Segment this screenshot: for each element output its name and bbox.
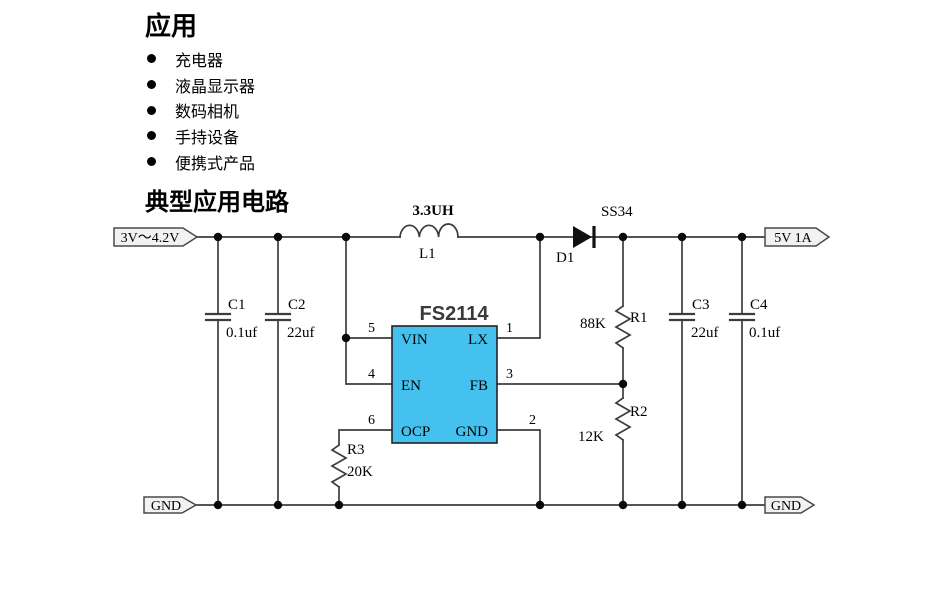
datasheet-page: { "page": { "applications_heading": "应用"…: [0, 0, 952, 602]
junction-dot: [342, 233, 350, 241]
diode-ref-label: D1: [556, 250, 574, 266]
junction-dot: [536, 233, 544, 241]
junction-dot: [335, 501, 343, 509]
c2-value-label: 22uf: [287, 325, 315, 341]
c3-ref-label: C3: [692, 297, 710, 313]
junction-dot: [274, 233, 282, 241]
resistor-r2-symbol: [616, 398, 630, 440]
c4-value-label: 0.1uf: [749, 325, 780, 341]
application-circuit-schematic: 3V～4.2V 5V 1A GND GND FS2114 VIN EN OCP …: [0, 0, 952, 602]
capacitor-c1-symbol: [206, 314, 230, 320]
c2-ref-label: C2: [288, 297, 306, 313]
c1-value-label: 0.1uf: [226, 325, 257, 341]
diode-part-label: SS34: [601, 204, 633, 220]
pin-number-2: 2: [529, 413, 536, 428]
capacitor-c2-symbol: [266, 314, 290, 320]
r2-ref-label: R2: [630, 404, 648, 420]
pin-label-vin: VIN: [401, 332, 428, 348]
junction-dot: [738, 233, 746, 241]
r1-ref-label: R1: [630, 310, 648, 326]
r2-value-label: 12K: [578, 429, 604, 445]
inductor-coil-symbol: [400, 224, 458, 237]
c1-ref-label: C1: [228, 297, 246, 313]
r1-value-label: 88K: [580, 316, 606, 332]
junction-dot: [678, 233, 686, 241]
resistor-r1-symbol: [616, 306, 630, 348]
inductor-ref-label: L1: [419, 246, 436, 262]
junction-dot: [738, 501, 746, 509]
diode-d1-symbol: [573, 226, 594, 248]
input-net-label: 3V～4.2V: [121, 231, 180, 246]
junction-dot: [274, 501, 282, 509]
junction-dot: [678, 501, 686, 509]
junction-dot: [619, 501, 627, 509]
ic-name-label: FS2114: [420, 303, 490, 325]
junction-dot: [619, 380, 627, 388]
resistor-r3-symbol: [332, 445, 346, 487]
pin-label-ocp: OCP: [401, 424, 430, 440]
pin-number-6: 6: [368, 413, 375, 428]
gnd-left-label: GND: [151, 499, 181, 514]
pin-number-5: 5: [368, 321, 375, 336]
wire-vin-en-branch: [346, 237, 392, 384]
junction-dot: [536, 501, 544, 509]
pin-number-1: 1: [506, 321, 513, 336]
pin-label-gnd: GND: [456, 424, 489, 440]
capacitor-c4-symbol: [730, 314, 754, 320]
capacitor-c3-symbol: [670, 314, 694, 320]
pin-number-3: 3: [506, 367, 513, 382]
pin-number-4: 4: [368, 367, 375, 382]
wire-gnd-pin-branch: [497, 430, 540, 505]
junction-dot: [619, 233, 627, 241]
junction-dot: [214, 233, 222, 241]
r3-value-label: 20K: [347, 464, 373, 480]
wire-lx-branch: [497, 237, 540, 338]
gnd-right-label: GND: [771, 499, 801, 514]
c4-ref-label: C4: [750, 297, 768, 313]
c3-value-label: 22uf: [691, 325, 719, 341]
pin-label-fb: FB: [470, 378, 488, 394]
inductor-value-label: 3.3UH: [412, 203, 454, 219]
diode-anode-triangle: [573, 226, 592, 248]
pin-label-lx: LX: [468, 332, 488, 348]
output-net-label: 5V 1A: [774, 231, 812, 246]
junction-dot: [214, 501, 222, 509]
pin-label-en: EN: [401, 378, 421, 394]
junction-dot: [342, 334, 350, 342]
r3-ref-label: R3: [347, 442, 365, 458]
